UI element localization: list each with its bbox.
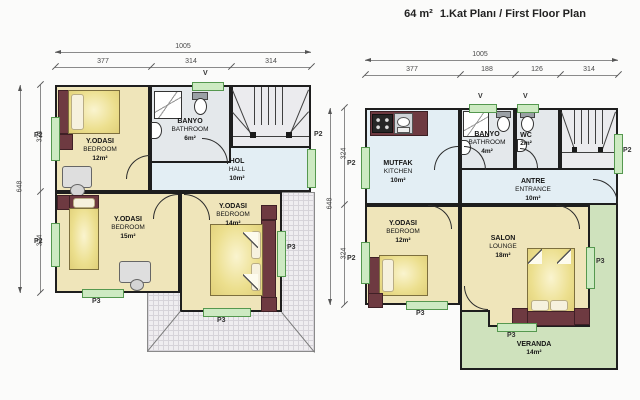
room-name-en: BATHROOM xyxy=(150,126,230,134)
stair-treads xyxy=(574,110,604,144)
nightstand xyxy=(574,308,590,325)
chair xyxy=(130,279,144,291)
room-area: 10m² xyxy=(492,195,574,203)
stair-treads xyxy=(254,87,288,125)
dim-line xyxy=(55,67,311,68)
dim-total-width: 1005 xyxy=(155,43,211,50)
veranda-step xyxy=(462,310,490,327)
room-area: 6m² xyxy=(150,135,230,143)
window-p2 xyxy=(51,117,60,161)
window-code: P2 xyxy=(347,160,356,167)
room-area: 15m² xyxy=(88,233,168,241)
room-label-bedroom-14: Y.ODASI BEDROOM 14m² xyxy=(192,202,274,228)
room-name-tr: WC xyxy=(505,131,547,140)
room-label-entrance: ANTRE ENTRANCE 10m² xyxy=(492,177,574,203)
dim-tick xyxy=(308,63,315,70)
plan-title-text: 1.Kat Planı / First Floor Plan xyxy=(440,8,586,20)
window-p3 xyxy=(203,308,251,317)
window-p2 xyxy=(361,147,370,189)
room-area: 12m² xyxy=(362,237,444,245)
bed-pillow xyxy=(73,198,95,208)
bed-headboard xyxy=(261,220,276,298)
room-name-tr: Y.ODASI xyxy=(88,215,168,224)
room-label-lounge: SALON LOUNGE 18m² xyxy=(462,234,544,260)
room-name-tr: ANTRE xyxy=(492,177,574,186)
vent-window xyxy=(517,104,539,113)
room-label-wc: WC 2m² xyxy=(505,131,547,149)
dim-arrow xyxy=(18,85,22,91)
room-name-tr: SALON xyxy=(462,234,544,243)
stair-post xyxy=(572,147,577,152)
dim-segment: 324 xyxy=(341,234,348,274)
room-area: 12m² xyxy=(60,155,140,163)
dim-segment: 314 xyxy=(167,58,215,65)
room-area: 14m² xyxy=(192,220,274,228)
dim-arrow xyxy=(612,58,618,62)
toilet xyxy=(194,98,207,115)
room-name-en: BEDROOM xyxy=(88,224,168,232)
stair-landing-line xyxy=(233,136,309,137)
room-name-tr: Y.ODASI xyxy=(192,202,274,211)
room-label-bedroom: Y.ODASI BEDROOM 12m² xyxy=(362,219,444,245)
dim-segment: 314 xyxy=(565,66,613,73)
room-name-tr: HOL xyxy=(197,157,277,166)
room-name-en: KITCHEN xyxy=(358,168,438,176)
window-p3 xyxy=(82,289,124,298)
window-p3 xyxy=(277,231,286,277)
stair-post xyxy=(286,132,292,138)
dim-segment: 188 xyxy=(463,66,511,73)
blanket-fold xyxy=(557,249,571,264)
vent-window xyxy=(469,104,497,113)
bed-pillow xyxy=(382,259,394,292)
dim-segment: 377 xyxy=(388,66,436,73)
plan-title-area: 64 m² xyxy=(404,8,433,20)
room-name-en: LOUNGE xyxy=(462,243,544,251)
dim-total-height: 648 xyxy=(327,184,334,224)
room-label-bathroom: BANYO BATHROOM 6m² xyxy=(150,117,230,143)
nightstand xyxy=(368,293,383,308)
window-p3 xyxy=(586,247,595,289)
bed-pillow xyxy=(531,300,549,311)
window-code: P3 xyxy=(287,244,296,251)
window-p2 xyxy=(361,242,370,284)
dim-arrow xyxy=(328,108,332,114)
room-label-hall: HOL HALL 10m² xyxy=(197,157,277,183)
vent-window xyxy=(192,82,224,91)
window-p3 xyxy=(497,323,537,332)
vent-code: V xyxy=(203,70,208,77)
dim-arrow xyxy=(305,50,311,54)
window-code: P3 xyxy=(416,310,425,317)
room-area: 10m² xyxy=(197,175,277,183)
dim-tick xyxy=(37,289,44,296)
blanket-fold xyxy=(243,232,258,248)
kitchen-drainer xyxy=(397,127,410,133)
kitchen-sink xyxy=(397,117,410,127)
dim-tick xyxy=(615,71,622,78)
blanket-fold xyxy=(243,274,258,290)
room-label-kitchen: MUTFAK KITCHEN 10m² xyxy=(358,159,438,185)
room-label-veranda: VERANDA 14m² xyxy=(493,340,575,358)
vent-code: V xyxy=(523,93,528,100)
floor-plan-drawing: 64 m²1.Kat Planı / First Floor Plan 1005… xyxy=(0,0,640,400)
room-label-bedroom-15: Y.ODASI BEDROOM 15m² xyxy=(88,215,168,241)
room-area: 10m² xyxy=(358,177,438,185)
bed-pillow xyxy=(71,94,84,130)
room-name-en: BEDROOM xyxy=(362,228,444,236)
dim-line xyxy=(55,52,311,53)
room-name-tr: BANYO xyxy=(150,117,230,126)
window-code: P3 xyxy=(92,298,101,305)
window-code: P2 xyxy=(34,132,43,139)
vent-code: V xyxy=(478,93,483,100)
window-p2 xyxy=(614,134,623,174)
room-name-tr: MUTFAK xyxy=(358,159,438,168)
window-p2 xyxy=(51,223,60,267)
window-code: P2 xyxy=(314,131,323,138)
window-code: P3 xyxy=(217,317,226,324)
window-code: P3 xyxy=(596,258,605,265)
dim-arrow xyxy=(365,58,371,62)
room-name-en: BEDROOM xyxy=(192,211,274,219)
dim-segment: 377 xyxy=(79,58,127,65)
room-name-en: HALL xyxy=(197,166,277,174)
dim-tick xyxy=(341,301,348,308)
bed-pillow xyxy=(550,300,568,311)
window-code: P2 xyxy=(34,238,43,245)
window-code: P3 xyxy=(507,332,516,339)
room-area: 2m² xyxy=(505,140,547,148)
dim-arrow xyxy=(55,50,61,54)
dim-arrow xyxy=(328,299,332,305)
dim-line xyxy=(365,60,618,61)
dim-segment: 126 xyxy=(513,66,561,73)
room-name-en: ENTRANCE xyxy=(492,186,574,194)
plan-title: 64 m²1.Kat Planı / First Floor Plan xyxy=(350,8,640,20)
window-p2 xyxy=(307,149,316,188)
window-p3 xyxy=(406,301,448,310)
stove xyxy=(372,114,393,133)
dim-segment: 314 xyxy=(247,58,295,65)
stair-landing-line xyxy=(562,152,616,153)
dim-line xyxy=(365,75,618,76)
stair-post xyxy=(250,132,256,138)
room-name-tr: Y.ODASI xyxy=(362,219,444,228)
nightstand xyxy=(261,297,277,312)
room-area: 14m² xyxy=(493,349,575,357)
room-label-bedroom-12: Y.ODASI BEDROOM 12m² xyxy=(60,137,140,163)
dim-total-width: 1005 xyxy=(452,51,508,58)
dim-total-height: 648 xyxy=(17,167,24,207)
dim-segment: 324 xyxy=(341,134,348,174)
room-area: 18m² xyxy=(462,252,544,260)
room-name-tr: VERANDA xyxy=(493,340,575,349)
window-code: P2 xyxy=(623,147,632,154)
room-area: 4m² xyxy=(447,148,527,156)
room-name-en: BEDROOM xyxy=(60,146,140,154)
room-name-tr: Y.ODASI xyxy=(60,137,140,146)
dim-arrow xyxy=(18,287,22,293)
window-code: P2 xyxy=(347,255,356,262)
shower xyxy=(154,91,182,119)
stair-post xyxy=(598,147,603,152)
